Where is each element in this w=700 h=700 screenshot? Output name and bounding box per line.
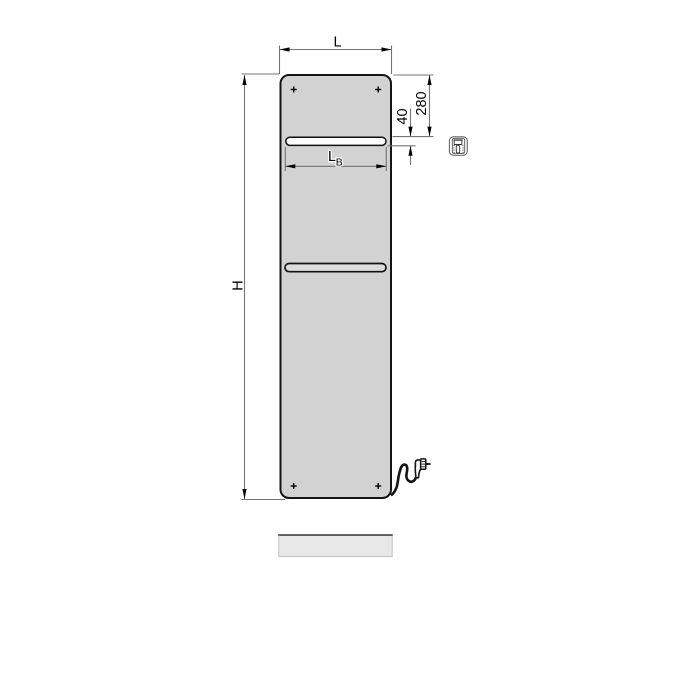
svg-text:H: H bbox=[230, 280, 246, 290]
svg-text:L: L bbox=[333, 35, 341, 51]
svg-text:280: 280 bbox=[414, 91, 430, 115]
svg-text:B: B bbox=[336, 157, 343, 169]
svg-text:40: 40 bbox=[395, 108, 411, 124]
